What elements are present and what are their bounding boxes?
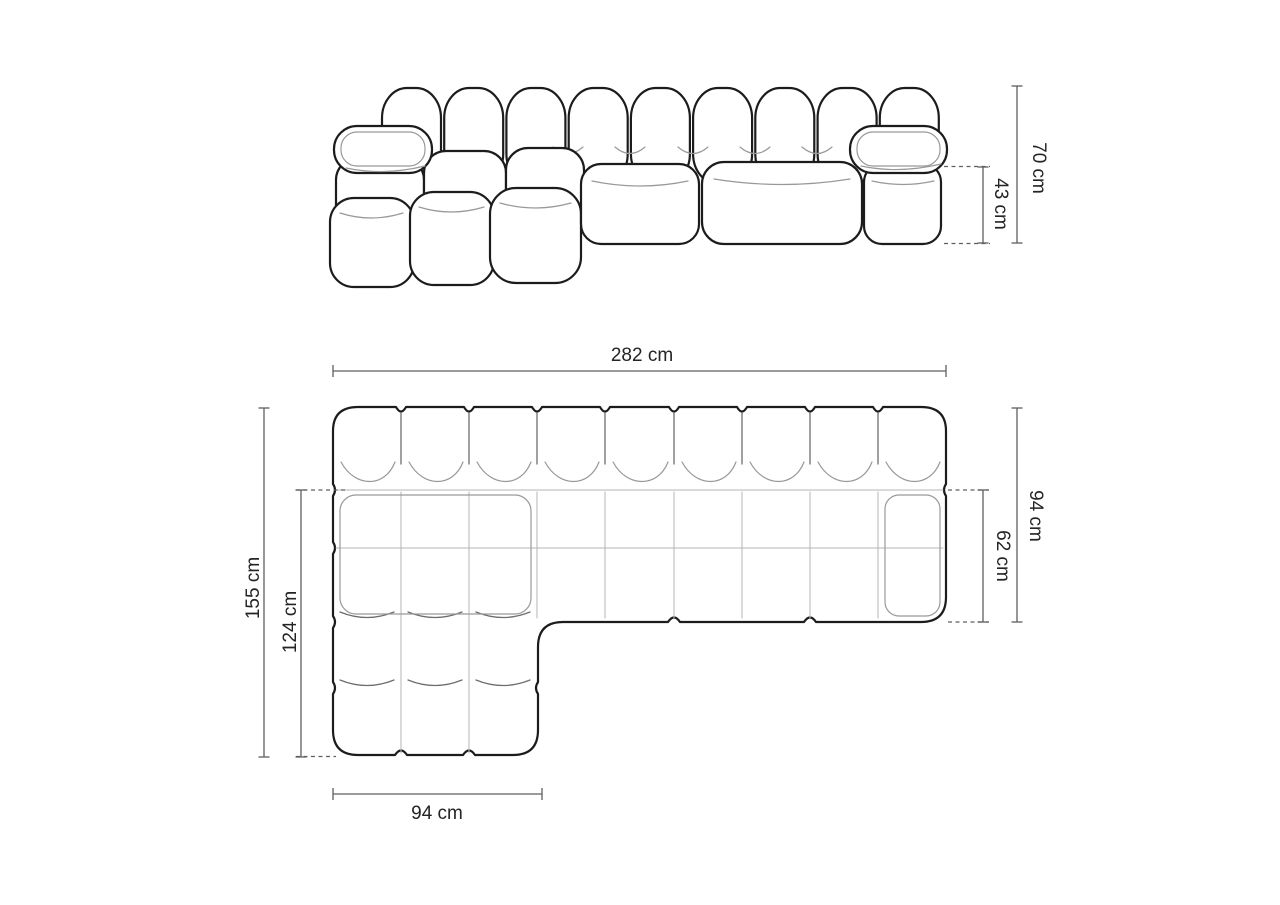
right-armrest <box>850 126 947 173</box>
sofa-front-elevation <box>330 88 947 287</box>
total-height-label: 70 cm <box>1028 142 1049 194</box>
chaise-front-cushions <box>330 188 581 287</box>
total-width-label: 282 cm <box>611 345 673 366</box>
total-depth-label: 155 cm <box>243 557 264 619</box>
seat-height-label: 43 cm <box>990 178 1011 230</box>
sofa-top-view <box>333 407 946 755</box>
chaise-width-label: 94 cm <box>411 803 463 824</box>
seat-cushions-front <box>581 162 941 244</box>
seat-depth-label: 62 cm <box>992 530 1013 582</box>
sofa-depth-label: 94 cm <box>1025 490 1046 542</box>
top-view-silhouette <box>333 407 946 755</box>
dim-total-width: 282 cm <box>333 345 946 377</box>
dimension-diagram: 43 cm 70 cm <box>0 0 1280 905</box>
dim-total-depth: 155 cm <box>243 408 270 757</box>
dim-sofa-depth: 94 cm <box>1012 408 1047 622</box>
chaise-inner-depth-label: 124 cm <box>280 591 301 653</box>
front-elevation-dimensions: 43 cm 70 cm <box>944 86 1049 244</box>
diagram-svg: 43 cm 70 cm <box>0 0 1280 905</box>
dim-total-height: 70 cm <box>1012 86 1050 243</box>
dim-seat-depth: 62 cm <box>948 490 1013 622</box>
dim-chaise-width: 94 cm <box>333 788 542 824</box>
left-armrest <box>334 126 432 173</box>
dim-seat-height: 43 cm <box>944 167 1011 244</box>
